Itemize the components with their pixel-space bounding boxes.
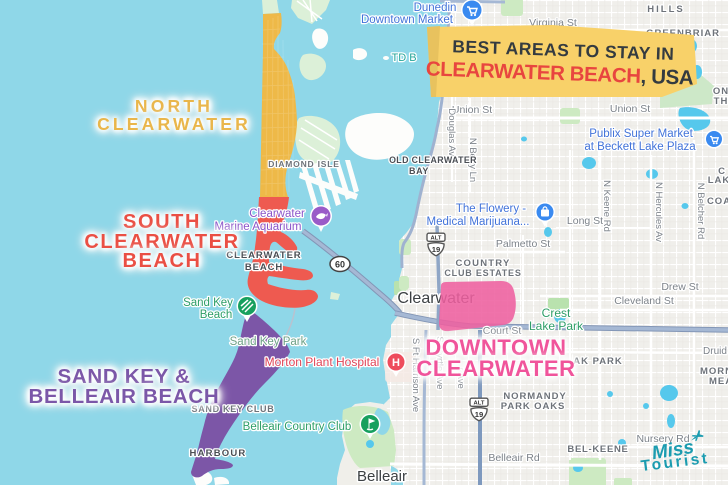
svg-text:Sand Key: Sand Key bbox=[183, 297, 233, 309]
svg-text:Douglas Ave: Douglas Ave bbox=[446, 108, 457, 161]
svg-text:DIAMOND ISLE: DIAMOND ISLE bbox=[268, 159, 339, 169]
svg-text:Cleveland St: Cleveland St bbox=[614, 295, 674, 307]
svg-text:PARK OAKS: PARK OAKS bbox=[501, 401, 565, 412]
svg-text:at Beckett Lake Plaza: at Beckett Lake Plaza bbox=[584, 141, 696, 153]
svg-text:Dunedin: Dunedin bbox=[414, 2, 457, 14]
svg-text:Crest: Crest bbox=[542, 306, 571, 320]
svg-text:ALT: ALT bbox=[431, 236, 442, 242]
svg-text:Morton Plant Hospital: Morton Plant Hospital bbox=[265, 355, 380, 369]
svg-text:Drew St: Drew St bbox=[661, 281, 698, 293]
svg-text:LAK: LAK bbox=[708, 175, 728, 186]
svg-text:Druid: Druid bbox=[703, 346, 727, 357]
svg-text:ALT: ALT bbox=[474, 401, 485, 407]
svg-text:BEL-KEENE: BEL-KEENE bbox=[567, 444, 628, 455]
svg-text:19: 19 bbox=[475, 410, 484, 419]
svg-text:Long St: Long St bbox=[567, 215, 603, 227]
svg-text:Sand Key Park: Sand Key Park bbox=[230, 336, 307, 348]
svg-text:Union St: Union St bbox=[610, 103, 650, 115]
svg-text:OLD CLEARWATER: OLD CLEARWATER bbox=[389, 155, 477, 165]
svg-text:COA: COA bbox=[707, 196, 728, 207]
svg-text:MEAD: MEAD bbox=[709, 376, 728, 387]
svg-text:19: 19 bbox=[432, 245, 441, 254]
svg-text:Lake Park: Lake Park bbox=[529, 319, 584, 333]
svg-text:CLUB ESTATES: CLUB ESTATES bbox=[444, 268, 521, 278]
svg-text:TD B: TD B bbox=[391, 52, 416, 64]
svg-text:Tourist: Tourist bbox=[640, 450, 710, 475]
svg-text:Beach: Beach bbox=[200, 309, 233, 321]
svg-text:N Hercules Av: N Hercules Av bbox=[653, 182, 664, 242]
svg-text:Belleair: Belleair bbox=[357, 468, 407, 485]
svg-text:Downtown Market: Downtown Market bbox=[361, 14, 454, 26]
svg-text:N Belcher Rd: N Belcher Rd bbox=[695, 183, 706, 240]
svg-text:60: 60 bbox=[335, 260, 345, 270]
svg-text:Palmetto St: Palmetto St bbox=[496, 238, 550, 250]
svg-text:Belleair Country Club: Belleair Country Club bbox=[243, 421, 352, 433]
svg-text:TH: TH bbox=[714, 96, 728, 107]
svg-text:HILLS: HILLS bbox=[647, 4, 684, 15]
svg-text:The Flowery -: The Flowery - bbox=[456, 203, 526, 215]
svg-text:HARBOUR: HARBOUR bbox=[190, 448, 247, 459]
svg-text:N Keene Rd: N Keene Rd bbox=[601, 180, 612, 232]
svg-text:BAY: BAY bbox=[409, 166, 429, 176]
svg-text:Medical Marijuana...: Medical Marijuana... bbox=[427, 216, 530, 228]
svg-text:Publix Super Market: Publix Super Market bbox=[589, 128, 693, 140]
svg-text:Belleair Rd: Belleair Rd bbox=[488, 452, 540, 464]
